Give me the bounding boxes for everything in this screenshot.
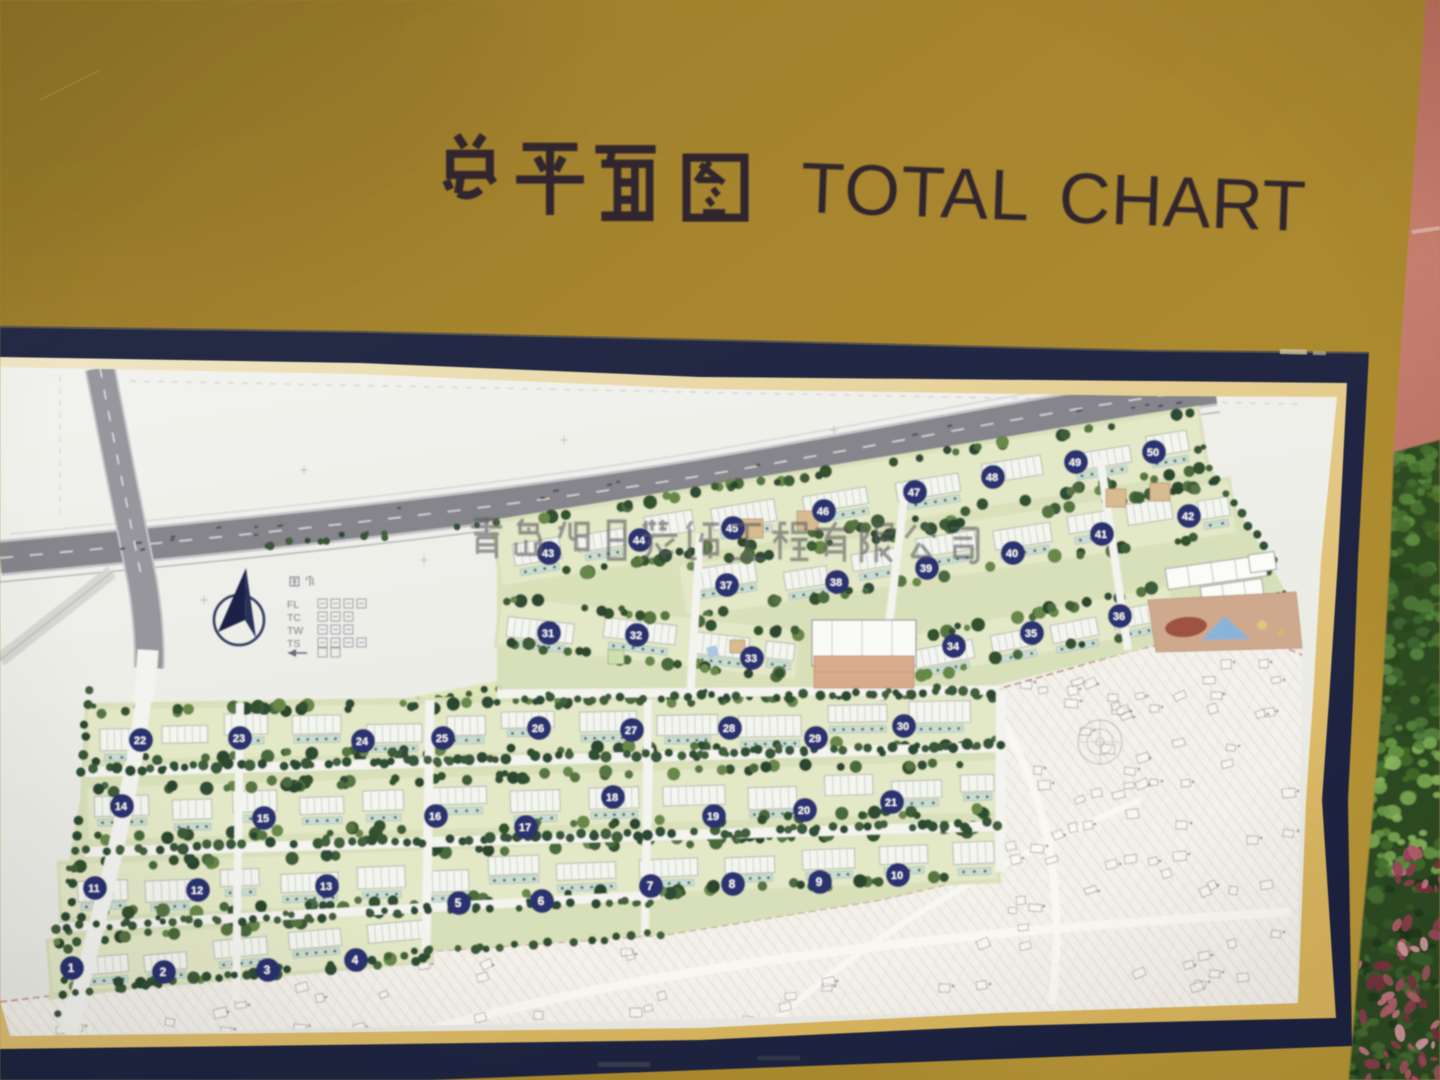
- svg-text:21: 21: [885, 797, 897, 809]
- svg-text:31: 31: [542, 628, 554, 640]
- svg-text:17: 17: [519, 822, 531, 834]
- svg-text:50: 50: [1147, 447, 1159, 459]
- svg-text:35: 35: [1025, 628, 1037, 640]
- svg-text:8: 8: [729, 877, 736, 891]
- svg-text:39: 39: [920, 563, 932, 575]
- svg-text:27: 27: [625, 725, 637, 737]
- svg-text:33: 33: [745, 653, 757, 665]
- svg-text:40: 40: [1006, 548, 1018, 560]
- svg-text:28: 28: [723, 723, 735, 735]
- svg-text:29: 29: [809, 733, 821, 745]
- svg-text:1: 1: [68, 961, 75, 975]
- svg-text:41: 41: [1095, 529, 1107, 541]
- svg-text:TW: TW: [287, 625, 303, 637]
- svg-text:38: 38: [830, 577, 842, 589]
- svg-text:4: 4: [352, 953, 359, 967]
- svg-text:46: 46: [817, 506, 829, 518]
- svg-text:37: 37: [720, 580, 732, 592]
- svg-text:TC: TC: [287, 612, 301, 624]
- svg-text:15: 15: [257, 813, 269, 825]
- svg-text:20: 20: [798, 805, 810, 817]
- svg-text:24: 24: [356, 736, 369, 748]
- svg-text:7: 7: [647, 879, 654, 893]
- svg-text:CHART: CHART: [1057, 158, 1307, 247]
- svg-text:49: 49: [1069, 457, 1081, 469]
- svg-text:6: 6: [538, 894, 545, 908]
- svg-text:32: 32: [630, 630, 642, 642]
- svg-text:13: 13: [320, 881, 332, 893]
- svg-text:10: 10: [891, 870, 903, 882]
- svg-text:9: 9: [816, 875, 823, 889]
- svg-text:FL: FL: [287, 599, 299, 611]
- svg-text:2: 2: [160, 965, 167, 979]
- svg-text:42: 42: [1182, 511, 1194, 523]
- svg-text:5: 5: [455, 896, 462, 910]
- svg-text:22: 22: [134, 735, 146, 747]
- svg-text:36: 36: [1113, 611, 1125, 623]
- svg-text:25: 25: [436, 733, 448, 745]
- svg-text:11: 11: [88, 883, 100, 895]
- svg-text:43: 43: [542, 548, 554, 560]
- svg-text:TOTAL: TOTAL: [799, 148, 1032, 236]
- svg-text:14: 14: [115, 801, 128, 813]
- svg-text:12: 12: [191, 885, 203, 897]
- svg-text:30: 30: [897, 721, 909, 733]
- svg-text:19: 19: [707, 811, 719, 823]
- svg-text:26: 26: [532, 723, 544, 735]
- svg-text:18: 18: [606, 792, 618, 804]
- svg-text:48: 48: [986, 472, 998, 484]
- svg-text:23: 23: [233, 733, 245, 745]
- svg-text:47: 47: [908, 487, 920, 499]
- svg-text:TS: TS: [287, 638, 300, 650]
- svg-text:34: 34: [947, 641, 960, 653]
- svg-text:16: 16: [429, 811, 441, 823]
- svg-text:3: 3: [264, 963, 271, 977]
